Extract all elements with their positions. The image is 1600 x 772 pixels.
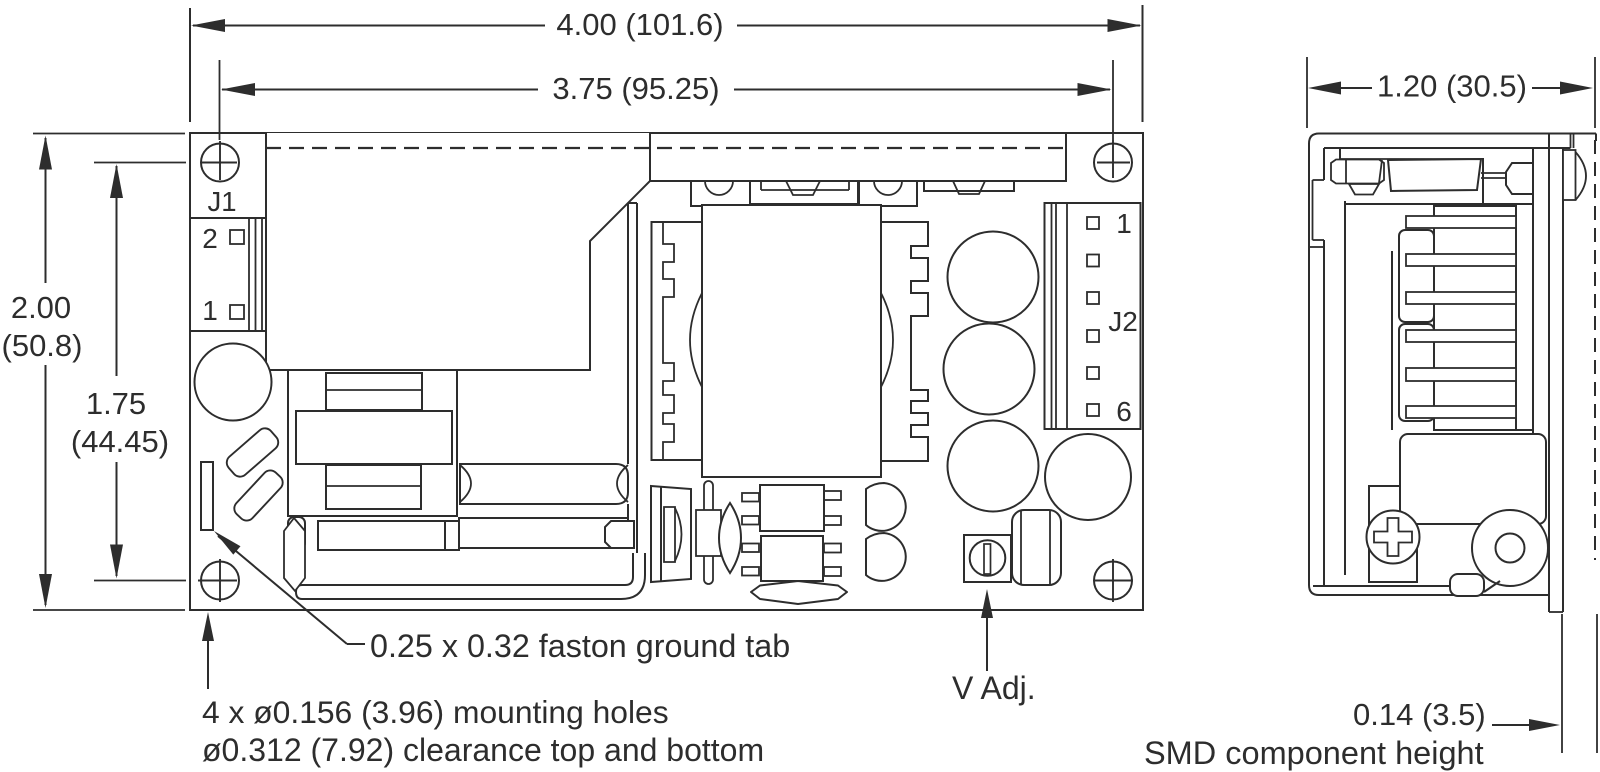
svg-text:2: 2 (202, 223, 218, 254)
svg-text:0.14 (3.5): 0.14 (3.5) (1353, 697, 1486, 732)
svg-text:ø0.312 (7.92) clearance top an: ø0.312 (7.92) clearance top and bottom (202, 732, 764, 768)
svg-text:1: 1 (202, 295, 218, 326)
svg-text:1.75: 1.75 (86, 386, 146, 421)
svg-text:4 x ø0.156 (3.96) mounting hol: 4 x ø0.156 (3.96) mounting holes (202, 694, 669, 730)
svg-text:(50.8): (50.8) (2, 328, 83, 363)
svg-text:1.20 (30.5): 1.20 (30.5) (1377, 69, 1527, 104)
svg-text:3.75 (95.25): 3.75 (95.25) (552, 71, 719, 106)
svg-text:4.00 (101.6): 4.00 (101.6) (556, 7, 723, 42)
svg-text:1: 1 (1116, 208, 1132, 239)
svg-text:0.25 x 0.32 faston ground tab: 0.25 x 0.32 faston ground tab (370, 628, 790, 664)
svg-text:2.00: 2.00 (11, 290, 71, 325)
svg-text:6: 6 (1116, 396, 1132, 427)
svg-text:J2: J2 (1108, 306, 1138, 337)
svg-text:(44.45): (44.45) (71, 424, 169, 459)
svg-text:J1: J1 (207, 186, 236, 217)
svg-text:SMD component height: SMD component height (1144, 735, 1484, 771)
svg-text:V Adj.: V Adj. (952, 670, 1036, 706)
